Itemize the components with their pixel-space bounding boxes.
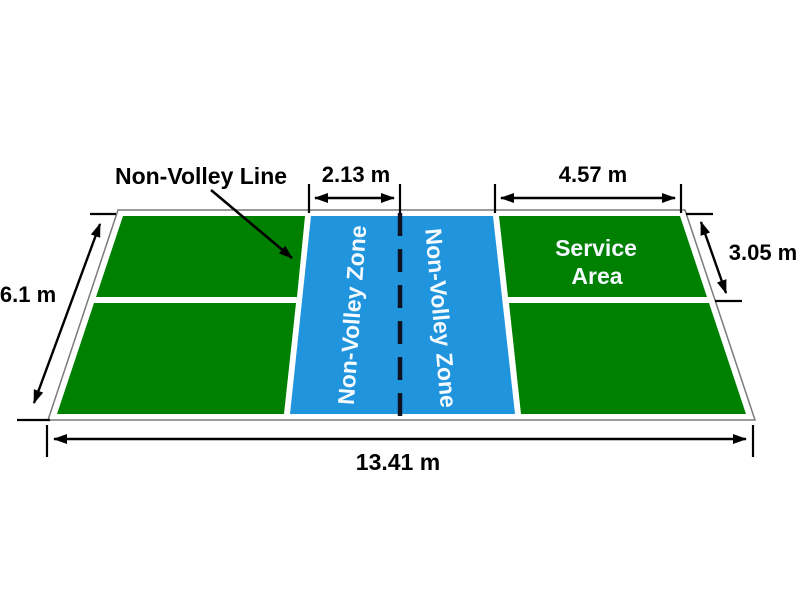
court-length-value: 13.41 m — [356, 449, 440, 475]
court-width-value: 6.1 m — [0, 282, 56, 307]
non-volley-zone-depth-value: 2.13 m — [322, 162, 391, 187]
court-diagram-svg: Non-Volley Zone Non-Volley Zone Service … — [0, 0, 800, 600]
service-court-bottom-left — [57, 303, 296, 414]
dimension-court-length: 13.41 m — [47, 425, 753, 475]
service-area-label-line1: Service — [555, 235, 637, 261]
non-volley-line-label: Non-Volley Line — [115, 163, 287, 189]
service-court-bottom-right — [509, 303, 746, 414]
dimension-service-area-length: 4.57 m — [495, 162, 681, 213]
pickleball-court-diagram: Non-Volley Zone Non-Volley Zone Service … — [0, 0, 800, 600]
service-court-top-left — [96, 216, 305, 297]
service-area-label-line2: Area — [571, 263, 622, 289]
service-area-length-value: 4.57 m — [559, 162, 628, 187]
service-area-width-value: 3.05 m — [729, 240, 798, 265]
non-volley-zone-area — [290, 216, 515, 414]
dimension-non-volley-zone-depth: 2.13 m — [309, 162, 400, 213]
